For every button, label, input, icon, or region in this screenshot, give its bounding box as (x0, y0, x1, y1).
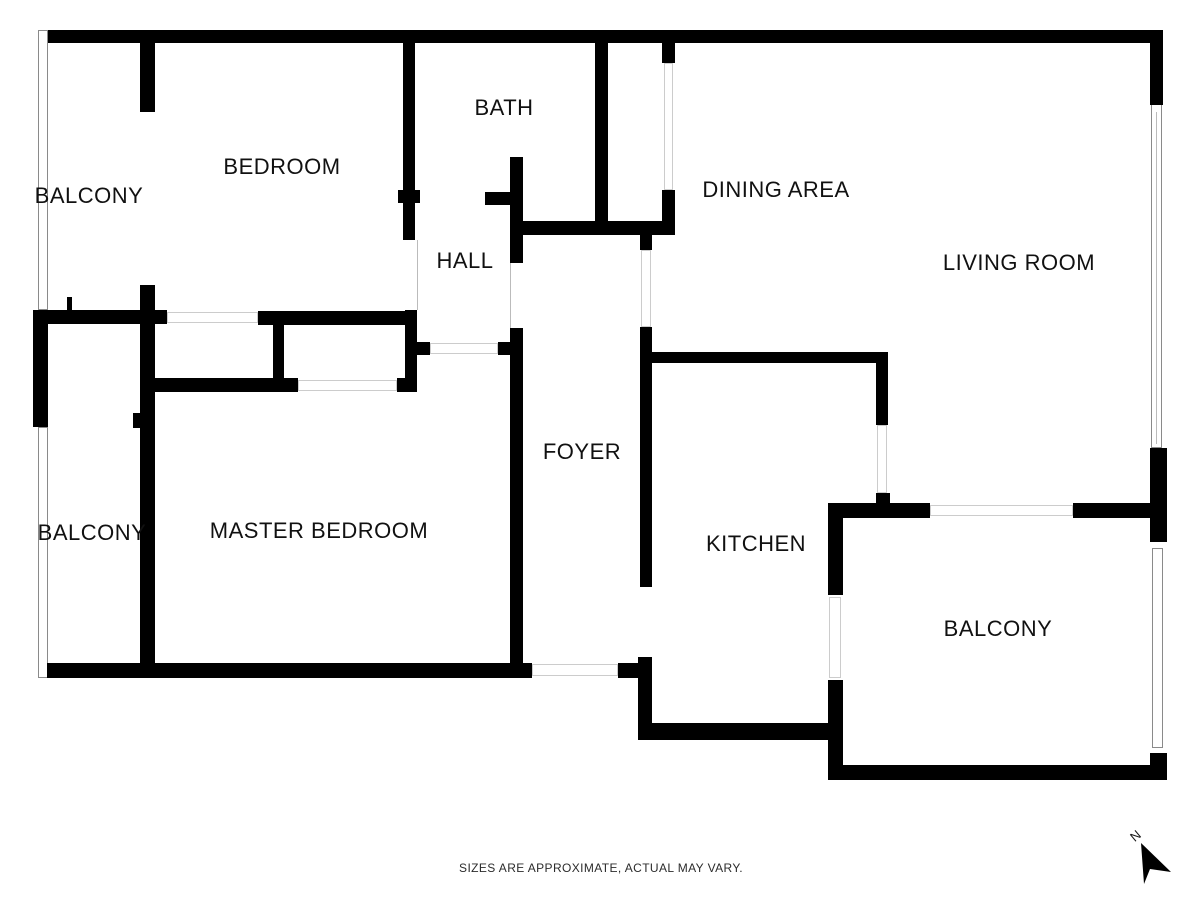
room-label-living-room: LIVING ROOM (943, 250, 1095, 276)
room-label-master-bedroom: MASTER BEDROOM (210, 518, 428, 544)
opening-edge-line (417, 240, 418, 310)
wall-segment (140, 42, 155, 112)
wall-segment (1073, 503, 1167, 518)
room-label-kitchen: KITCHEN (706, 531, 806, 557)
wall-segment (618, 663, 640, 678)
wall-segment (662, 40, 675, 63)
wall-segment (510, 328, 523, 667)
door-opening (430, 343, 498, 354)
door-opening (298, 380, 397, 391)
room-label-bath: BATH (474, 95, 533, 121)
wall-segment (67, 297, 72, 311)
wall-segment (498, 342, 511, 355)
wall-segment (828, 765, 1167, 780)
door-opening (877, 425, 887, 493)
wall-segment (652, 352, 888, 363)
wall-segment (155, 378, 298, 392)
wall-segment (1150, 448, 1167, 542)
wall-segment (33, 310, 167, 324)
wall-segment (662, 190, 675, 235)
wall-segment (417, 342, 430, 355)
door-opening (641, 250, 651, 327)
opening-edge-line (510, 263, 511, 328)
size-disclaimer-text: SIZES ARE APPROXIMATE, ACTUAL MAY VARY. (459, 861, 743, 875)
floor-plan: BALCONYBEDROOMBATHHALLDINING AREALIVING … (0, 0, 1200, 900)
door-opening (167, 312, 258, 323)
wall-segment (133, 413, 142, 428)
north-arrow-icon: N (1126, 826, 1182, 892)
wall-segment (876, 363, 888, 425)
wall-segment (510, 157, 523, 263)
wall-segment (640, 235, 652, 250)
balcony-railing (38, 30, 48, 310)
north-arrow-pointer (1141, 843, 1171, 884)
wall-segment (398, 190, 420, 203)
wall-segment (47, 663, 532, 678)
opening-edge-line (1156, 112, 1157, 444)
wall-segment (258, 311, 417, 325)
wall-segment (33, 310, 48, 427)
wall-segment (1150, 43, 1163, 105)
wall-segment (640, 327, 652, 587)
wall-segment (140, 285, 155, 667)
wall-segment (273, 324, 284, 378)
door-opening (664, 63, 673, 190)
room-label-balcony-top-left: BALCONY (35, 183, 144, 209)
room-label-balcony-bottom-right: BALCONY (944, 616, 1053, 642)
balcony-railing (1152, 548, 1163, 748)
wall-segment (638, 657, 652, 740)
wall-segment (485, 192, 510, 205)
room-label-hall: HALL (436, 248, 493, 274)
wall-segment (405, 310, 417, 392)
door-opening (930, 505, 1073, 516)
wall-segment (650, 723, 843, 740)
room-label-bedroom: BEDROOM (223, 154, 340, 180)
door-opening (829, 597, 841, 678)
room-label-balcony-left: BALCONY (38, 520, 147, 546)
north-arrow-label: N (1127, 827, 1144, 845)
wall-segment (828, 503, 930, 518)
balcony-railing (38, 427, 48, 678)
wall-segment (595, 40, 608, 225)
room-label-dining-area: DINING AREA (702, 177, 849, 203)
door-opening (532, 664, 618, 676)
room-label-foyer: FOYER (543, 439, 621, 465)
wall-segment (876, 493, 890, 503)
wall-segment (403, 42, 415, 240)
